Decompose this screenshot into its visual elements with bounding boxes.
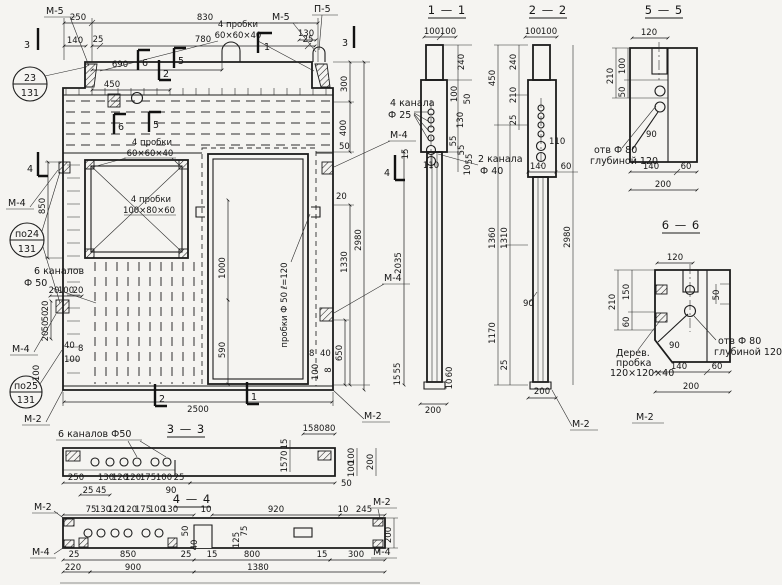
dim-label: 100 [450,86,460,102]
dim-label: 60 [561,162,572,172]
dim-label: 240 [457,54,467,70]
cut-mark-5: 5 [178,56,184,67]
dim-label: 1310 [500,227,510,249]
callout-m4: М-4 [32,547,50,558]
dim-label: 100 [32,365,42,381]
dim-label: 210 [606,68,616,84]
note-6-kanalov-f50: 6 каналов Ф50 [58,429,131,440]
dim-label: 25 [181,550,192,560]
callout-m2: М-2 [572,419,590,430]
dim-label: 40 [64,341,75,351]
dim-label: 10 [201,505,212,515]
note-f25: Ф 25 [388,110,411,121]
channel-lines [95,262,194,384]
note-4-kanala: 4 канала [390,98,435,109]
section-title: 4 — 4 [173,492,211,506]
dim-label: 100 [64,355,80,365]
callout-m5: М-5 [46,6,64,17]
dim-label: 100 [440,27,456,37]
callout-m2: М-2 [34,502,52,513]
callout-m4: М-4 [8,198,26,209]
dim-label: 90 [646,130,657,140]
section-title: 1 — 1 [428,3,466,17]
dim-label: 110 [549,137,565,147]
dim-label: 450 [488,70,498,86]
section-6-6-view: 6 — 6 90 120 210 150 60 50 отв Ф 80 глуб… [608,218,782,392]
dim-label: 300 [340,76,350,92]
cut-mark-6: 6 [142,58,148,69]
dim-label: 90 [669,341,680,351]
balloon-23-131: 23 131 [13,67,86,101]
cut-mark-1: 1 [251,392,257,403]
dim-label: 15 [401,149,411,160]
cut-mark-5: 5 [153,120,159,131]
dim-label: 50 [712,290,722,301]
note-otv-f80: отв Ф 80 [718,336,761,347]
dim-label: 100 [156,473,172,483]
dim-label: 20 [73,286,84,296]
dim-label: 50 [181,526,191,537]
dim-label: 75 [240,526,250,537]
note-2-kanala: 2 канала [478,154,523,165]
section-title: 6 — 6 [662,218,700,232]
note-4-probki: 4 пробки [218,20,258,30]
callout-m4: М-4 [384,273,402,284]
note-4-probki: 4 пробки [132,138,172,148]
dim-label: 15 [317,550,328,560]
balloon-top: 23 [24,73,36,84]
dim-label: 650 [335,345,345,361]
dim-label: 100 [525,27,541,37]
dim-label: 850 [38,198,48,214]
note-4-probki: 4 пробки [131,195,171,205]
section-title: 2 — 2 [529,3,567,17]
dim-label: 200 [534,387,550,397]
dim-label: 60 [681,162,692,172]
note-size: 100×80×60 [123,206,175,216]
balloon-bottom: 131 [18,244,36,255]
callout-p5: П-5 [314,4,331,15]
section-4-4-view: 4 — 4 75 130 120 120 175 100 130 10 920 … [30,492,420,583]
dim-label: 200 [655,180,671,190]
callout-m5: М-5 [272,12,290,23]
dim-label: 245 [356,505,372,515]
dim-label: 8 [78,344,83,354]
dim-label: 45 [96,486,107,496]
dim-label: 40 [190,540,200,551]
callouts: М-5 М-5 П-5 23 131 по24 131 по25 131 М-4… [6,4,523,425]
note-size: 60×60×40 [215,31,262,41]
note-6-kanalov: 6 каналов [34,266,85,277]
dim-label: 80 [325,424,336,434]
note-size: 60×60×40 [127,149,174,159]
dim-label: 240 [509,54,519,70]
cut-mark-1: 1 [264,42,270,53]
drawing-sheet: 250 830 140 25 780 25 690 450 130 300 40… [0,0,782,585]
dim-label: 900 [125,563,141,573]
dim-label: 50 [41,321,51,332]
dim-label: 50 [618,87,628,98]
panel-outline [63,62,333,390]
dim-label: 8 [309,349,314,359]
cut-mark-4: 4 [27,164,33,175]
dim-label: 8 [324,367,334,372]
dim-label: 175 [140,473,156,483]
dim-label: 100 [618,58,628,74]
note-otv-f80: отв Ф 80 [594,145,637,156]
dim-label: 25 [93,35,104,45]
dim-label: 10 [463,165,473,176]
corner-plug-right [315,64,330,87]
dim-label: 140 [671,362,687,372]
dim-label: 210 [608,294,618,310]
dim-label: 800 [244,550,260,560]
dim-label: 850 [120,550,136,560]
dim-label: 130 [456,112,466,128]
dim-label: 200 [366,454,376,470]
dim-label: 120 [125,473,141,483]
cut-mark-3: 3 [24,40,30,51]
balloon-po25-131: по25 131 [10,350,62,408]
callout-m2: М-2 [24,414,42,425]
band-plug [108,94,120,107]
balloon-bottom: 131 [17,395,35,406]
section-5-5-view: 5 — 5 90 120 210 100 50 отв Ф 80 глубино… [590,3,697,190]
dim-label: 25 [509,115,519,126]
dim-label: 120 [641,28,657,38]
dim-label: 90 [523,299,534,309]
note-glubina: глубиной 120 [714,347,782,358]
dim-label: 1000 [218,257,228,279]
dim-label: 25 [83,486,94,496]
dim-label: 140 [643,162,659,172]
note-f50: Ф 50 [24,278,47,289]
edge-plug [56,300,69,313]
dim-label: 60 [445,367,455,378]
dim-label: 300 [348,550,364,560]
dim-label: 140 [530,162,546,172]
dim-label: 210 [509,87,519,103]
section-3-3-view: 3 — 3 6 каналов Ф50 250 130 120 120 175 … [56,422,376,496]
balloon-top: по24 [15,229,39,240]
note-size: 120×120×40 [610,368,674,379]
dim-label: 200 [425,406,441,416]
cut-mark-4: 4 [384,168,390,179]
dim-label: 60 [622,317,632,328]
callout-m2: М-2 [373,497,391,508]
dim-label: 2500 [187,405,209,415]
dim-label: 15 [303,424,314,434]
dim-label: 20 [41,301,51,312]
blueprint-canvas: 250 830 140 25 780 25 690 450 130 300 40… [0,0,782,585]
dim-label: 80 [314,424,325,434]
section-title: 5 — 5 [645,3,683,17]
core-band-hatch [66,101,330,145]
dim-label: 450 [104,80,120,90]
dim-label: 130 [162,505,178,515]
dim-label: 40 [320,349,331,359]
dim-label: 130 [298,29,314,39]
dim-label: 100 [347,461,357,477]
section-title: 3 — 3 [167,422,205,436]
cut-mark-2: 2 [163,69,169,80]
dim-label: 10 [338,505,349,515]
dim-label: 50 [41,311,51,322]
edge-plug [59,162,70,173]
main-elevation-view: 250 830 140 25 780 25 690 450 130 300 40… [32,13,404,415]
dim-label: 15 [280,462,290,473]
dim-label: 2980 [354,229,364,251]
note-f40: Ф 40 [480,166,503,177]
dim-label: 2035 [394,252,404,274]
dim-label: 15 [280,439,290,450]
dim-label: 200 [683,382,699,392]
dim-label: 1330 [340,251,350,273]
dim-label: 100 [424,27,440,37]
dim-label: 150 [622,284,632,300]
callout-m4: М-4 [12,344,30,355]
cut-mark-3: 3 [342,38,348,49]
dim-label: 110 [423,161,439,171]
dim-label: 250 [68,473,84,483]
dim-label: 10 [445,379,455,390]
cut-mark-6: 6 [118,122,124,133]
dim-label: 1360 [488,227,498,249]
dim-label: 200 [384,527,394,543]
dim-label: 250 [70,13,86,23]
dim-label: 830 [197,13,213,23]
top-lug [222,42,240,62]
dim-label: 60 [712,362,723,372]
balloon-bottom: 131 [21,88,39,99]
dim-label: 50 [463,94,473,105]
edge-plug [320,308,333,321]
dim-label: 1170 [488,322,498,344]
dim-label: 55 [393,363,403,374]
dim-label: 920 [268,505,284,515]
callout-m2: М-2 [364,411,382,422]
dim-label: 400 [339,120,349,136]
dim-label: 70 [280,451,290,462]
dim-label: 1380 [247,563,269,573]
dim-label: 20 [41,331,51,342]
dim-label: 55 [465,154,475,165]
dim-label: 590 [218,342,228,358]
dim-label: 15 [393,375,403,386]
cut-mark-2: 2 [159,394,165,405]
door-opening [196,148,320,386]
dim-label: 690 [112,60,128,70]
dim-label: 25 [69,550,80,560]
callout-m2: М-2 [636,412,654,423]
dim-label: 50 [341,479,352,489]
dim-label: 50 [339,142,350,152]
band-plug-circle [132,93,143,104]
callout-m4: М-4 [373,547,391,558]
dim-label: 25 [500,360,510,371]
dim-label: 220 [65,563,81,573]
corner-plug-left [85,64,97,87]
dim-label: 100 [541,27,557,37]
dim-label: 120 [667,253,683,263]
edge-plug [322,162,333,174]
dim-label: 20 [336,192,347,202]
callout-m4: М-4 [390,130,408,141]
dim-label: 15 [207,550,218,560]
section-1-1-view: 1 — 1 100 100 240 100 50 130 55 55 55 10… [393,3,475,416]
dim-label: 2980 [563,226,573,248]
dim-label: 100 [311,364,321,380]
note-probki-f50: пробки Ф 50 ℓ=120 [280,262,290,347]
dim-label: 25 [174,473,185,483]
balloon-top: по25 [14,381,38,392]
